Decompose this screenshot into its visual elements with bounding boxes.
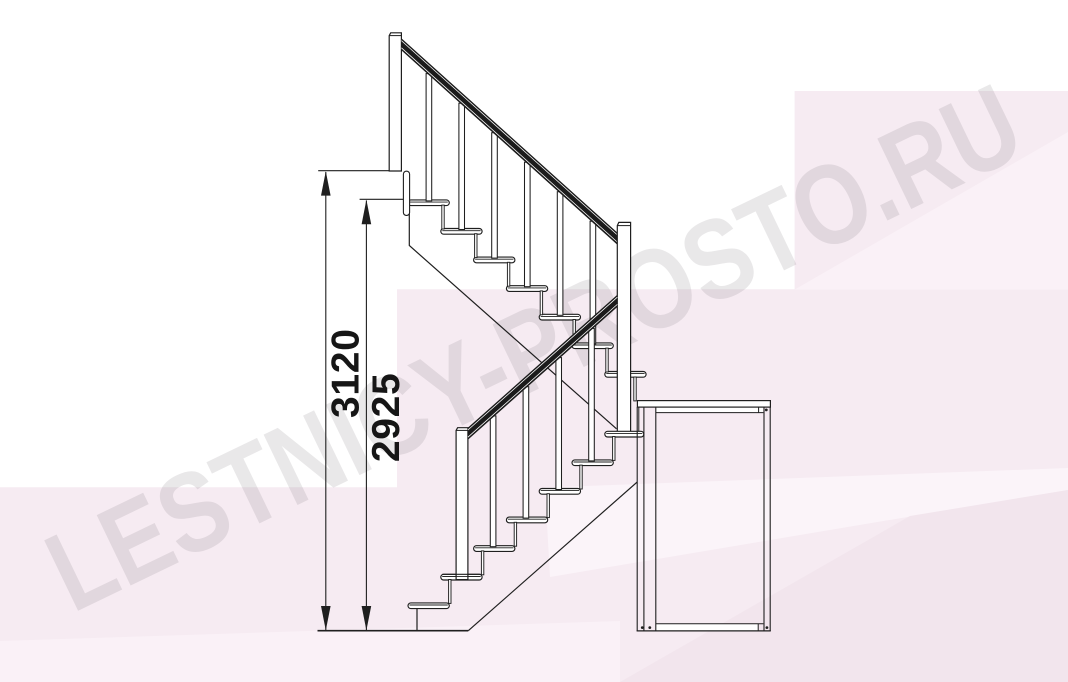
svg-text:2925: 2925: [365, 373, 408, 463]
svg-text:3120: 3120: [324, 328, 367, 418]
